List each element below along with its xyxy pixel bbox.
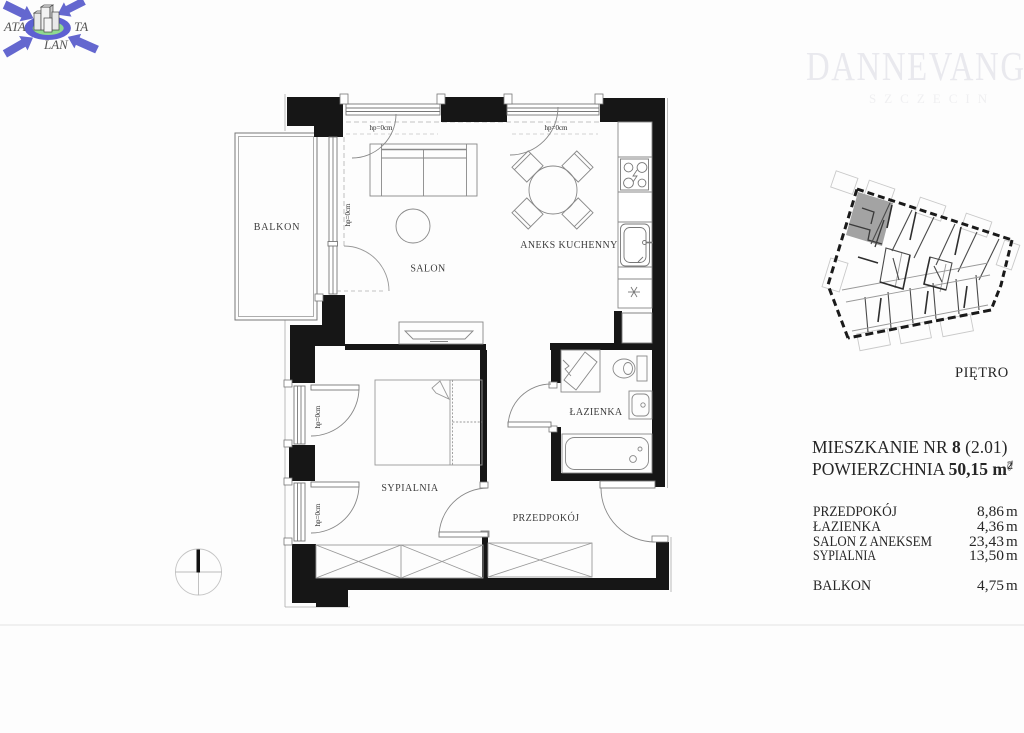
svg-text:POWIERZCHNIA 50,15 m2: POWIERZCHNIA 50,15 m2 — [812, 458, 1013, 479]
svg-text:m: m — [1006, 578, 1018, 594]
svg-text:4,36: 4,36 — [977, 519, 1005, 535]
svg-text:8,86: 8,86 — [977, 504, 1005, 520]
svg-text:SALON: SALON — [410, 264, 445, 275]
svg-text:PIĘTRO: PIĘTRO — [955, 365, 1009, 381]
svg-text:hp=0cm: hp=0cm — [344, 203, 352, 227]
svg-text:ANEKS KUCHENNY: ANEKS KUCHENNY — [520, 240, 618, 251]
svg-text:ATA: ATA — [3, 19, 26, 34]
svg-text:hp=0cm: hp=0cm — [370, 124, 394, 132]
svg-text:BALKON: BALKON — [254, 222, 300, 233]
svg-text:hp=0cm: hp=0cm — [314, 405, 322, 429]
svg-text:m: m — [1006, 548, 1018, 564]
svg-text:4,75: 4,75 — [977, 578, 1004, 594]
svg-text:hp=0cm: hp=0cm — [545, 124, 569, 132]
svg-text:MIESZKANIE NR 8 (2.01): MIESZKANIE NR 8 (2.01) — [812, 437, 1008, 457]
svg-text:PRZEDPOKÓJ: PRZEDPOKÓJ — [813, 503, 897, 520]
svg-text:m: m — [1006, 504, 1018, 520]
svg-text:hp=0cm: hp=0cm — [314, 503, 322, 527]
svg-text:SZCZECIN: SZCZECIN — [869, 91, 995, 106]
svg-text:SYPIALNIA: SYPIALNIA — [381, 483, 439, 494]
svg-text:m: m — [1006, 519, 1018, 535]
svg-text:ŁAZIENKA: ŁAZIENKA — [570, 407, 623, 418]
svg-text:ŁAZIENKA: ŁAZIENKA — [813, 519, 881, 535]
svg-text:LAN: LAN — [43, 37, 69, 52]
svg-text:PRZEDPOKÓJ: PRZEDPOKÓJ — [513, 512, 580, 524]
svg-text:SYPIALNIA: SYPIALNIA — [813, 548, 876, 564]
svg-text:TA: TA — [74, 19, 88, 34]
svg-text:13,50: 13,50 — [969, 548, 1004, 564]
svg-text:DANNEVANG: DANNEVANG — [806, 45, 1024, 90]
svg-text:BALKON: BALKON — [813, 578, 871, 594]
